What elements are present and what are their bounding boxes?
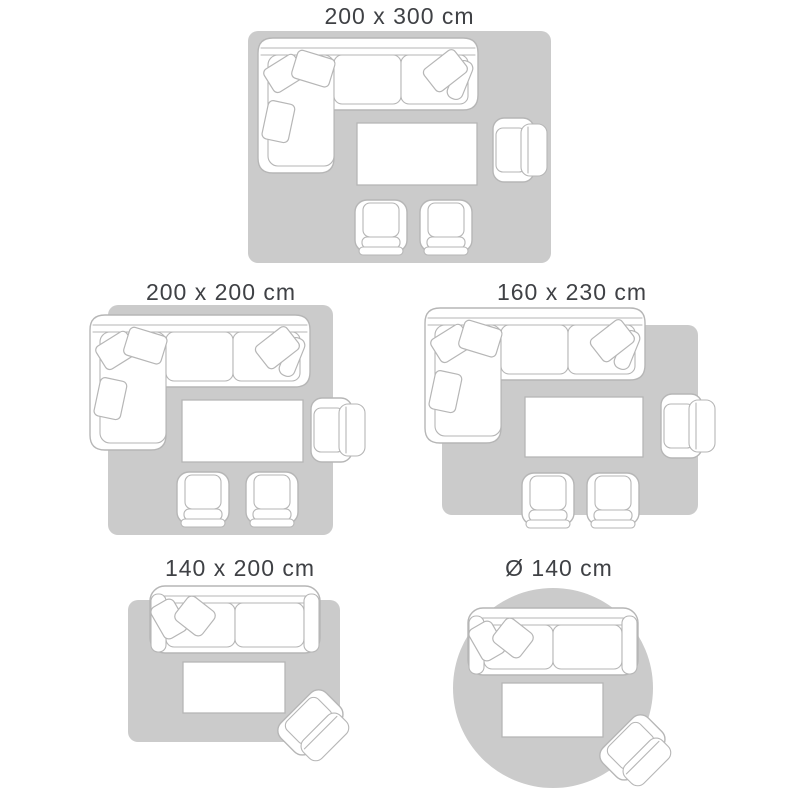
panel-scene-d140 — [453, 588, 679, 794]
panel-scene-140x200 — [128, 586, 357, 769]
coffee-table-icon — [182, 400, 303, 462]
panel-scene-200x200 — [90, 305, 365, 535]
panel-scene-200x300 — [248, 31, 551, 263]
lounge-chair-icon — [522, 473, 574, 528]
coffee-table-icon — [183, 662, 285, 713]
lounge-chair-icon — [420, 200, 472, 255]
lounge-chair-icon — [355, 200, 407, 255]
armchair-icon — [661, 394, 715, 458]
coffee-table-icon — [525, 397, 643, 457]
lounge-chair-icon — [177, 472, 229, 527]
rug-size-guide-canvas — [0, 0, 800, 800]
lounge-chair-icon — [246, 472, 298, 527]
armchair-icon — [493, 118, 547, 182]
coffee-table-icon — [502, 683, 603, 737]
panel-scene-160x230 — [425, 308, 715, 528]
coffee-table-icon — [357, 123, 477, 185]
loveseat-sofa-icon — [149, 586, 320, 653]
armchair-icon — [311, 398, 365, 462]
lounge-chair-icon — [587, 473, 639, 528]
rug-size-guide: 200 x 300 cm 200 x 200 cm 160 x 230 cm 1… — [0, 0, 800, 800]
loveseat-sofa-icon — [467, 608, 638, 675]
